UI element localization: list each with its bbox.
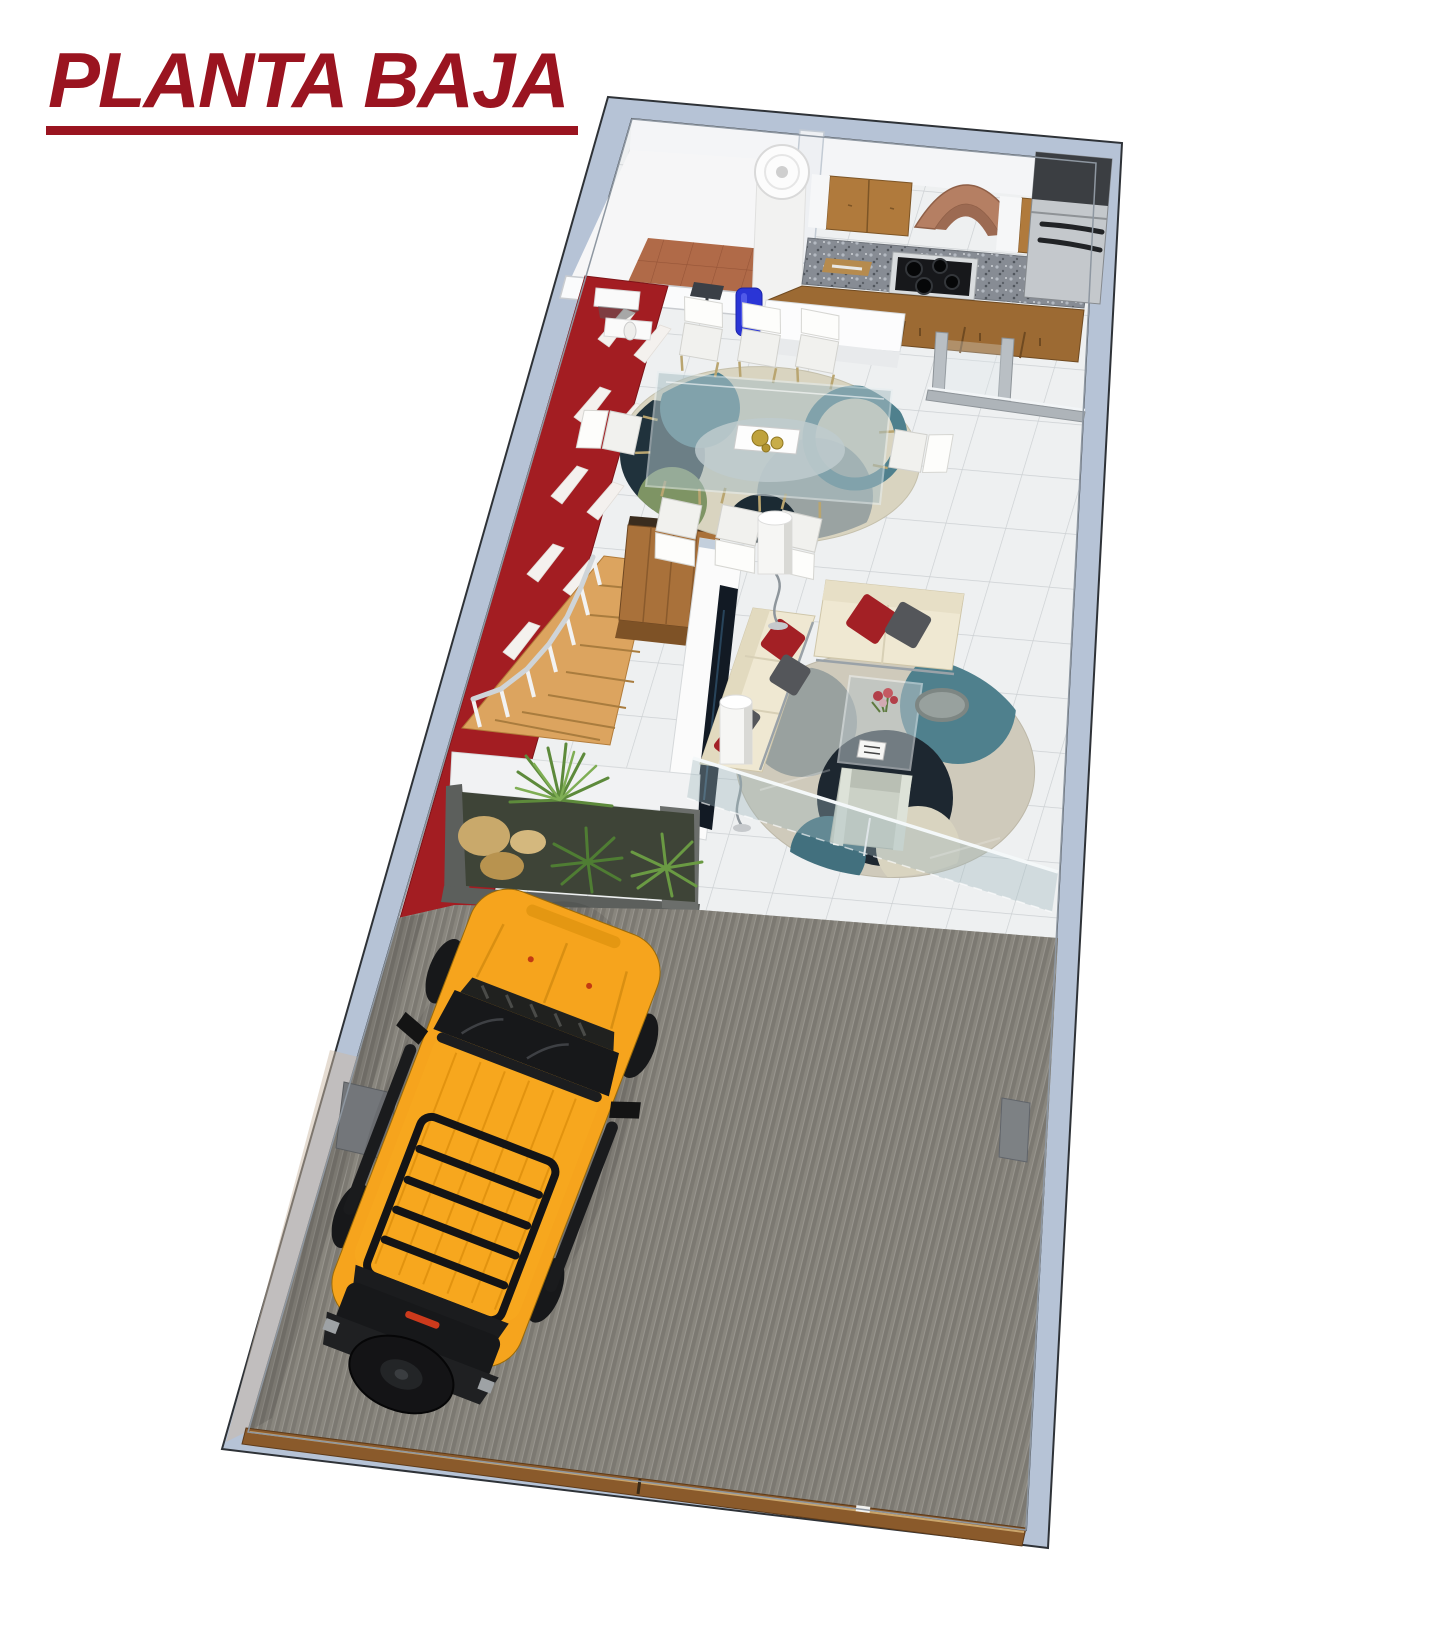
floor-plan-render xyxy=(0,0,1450,1650)
magazine xyxy=(857,740,886,760)
coffee-table xyxy=(838,676,922,770)
refrigerator xyxy=(1024,152,1112,304)
glass-dining-table xyxy=(646,372,892,504)
right-pilaster xyxy=(999,1098,1030,1162)
centerpiece-tray xyxy=(734,425,800,454)
stove xyxy=(889,252,978,300)
pouf xyxy=(917,690,967,720)
